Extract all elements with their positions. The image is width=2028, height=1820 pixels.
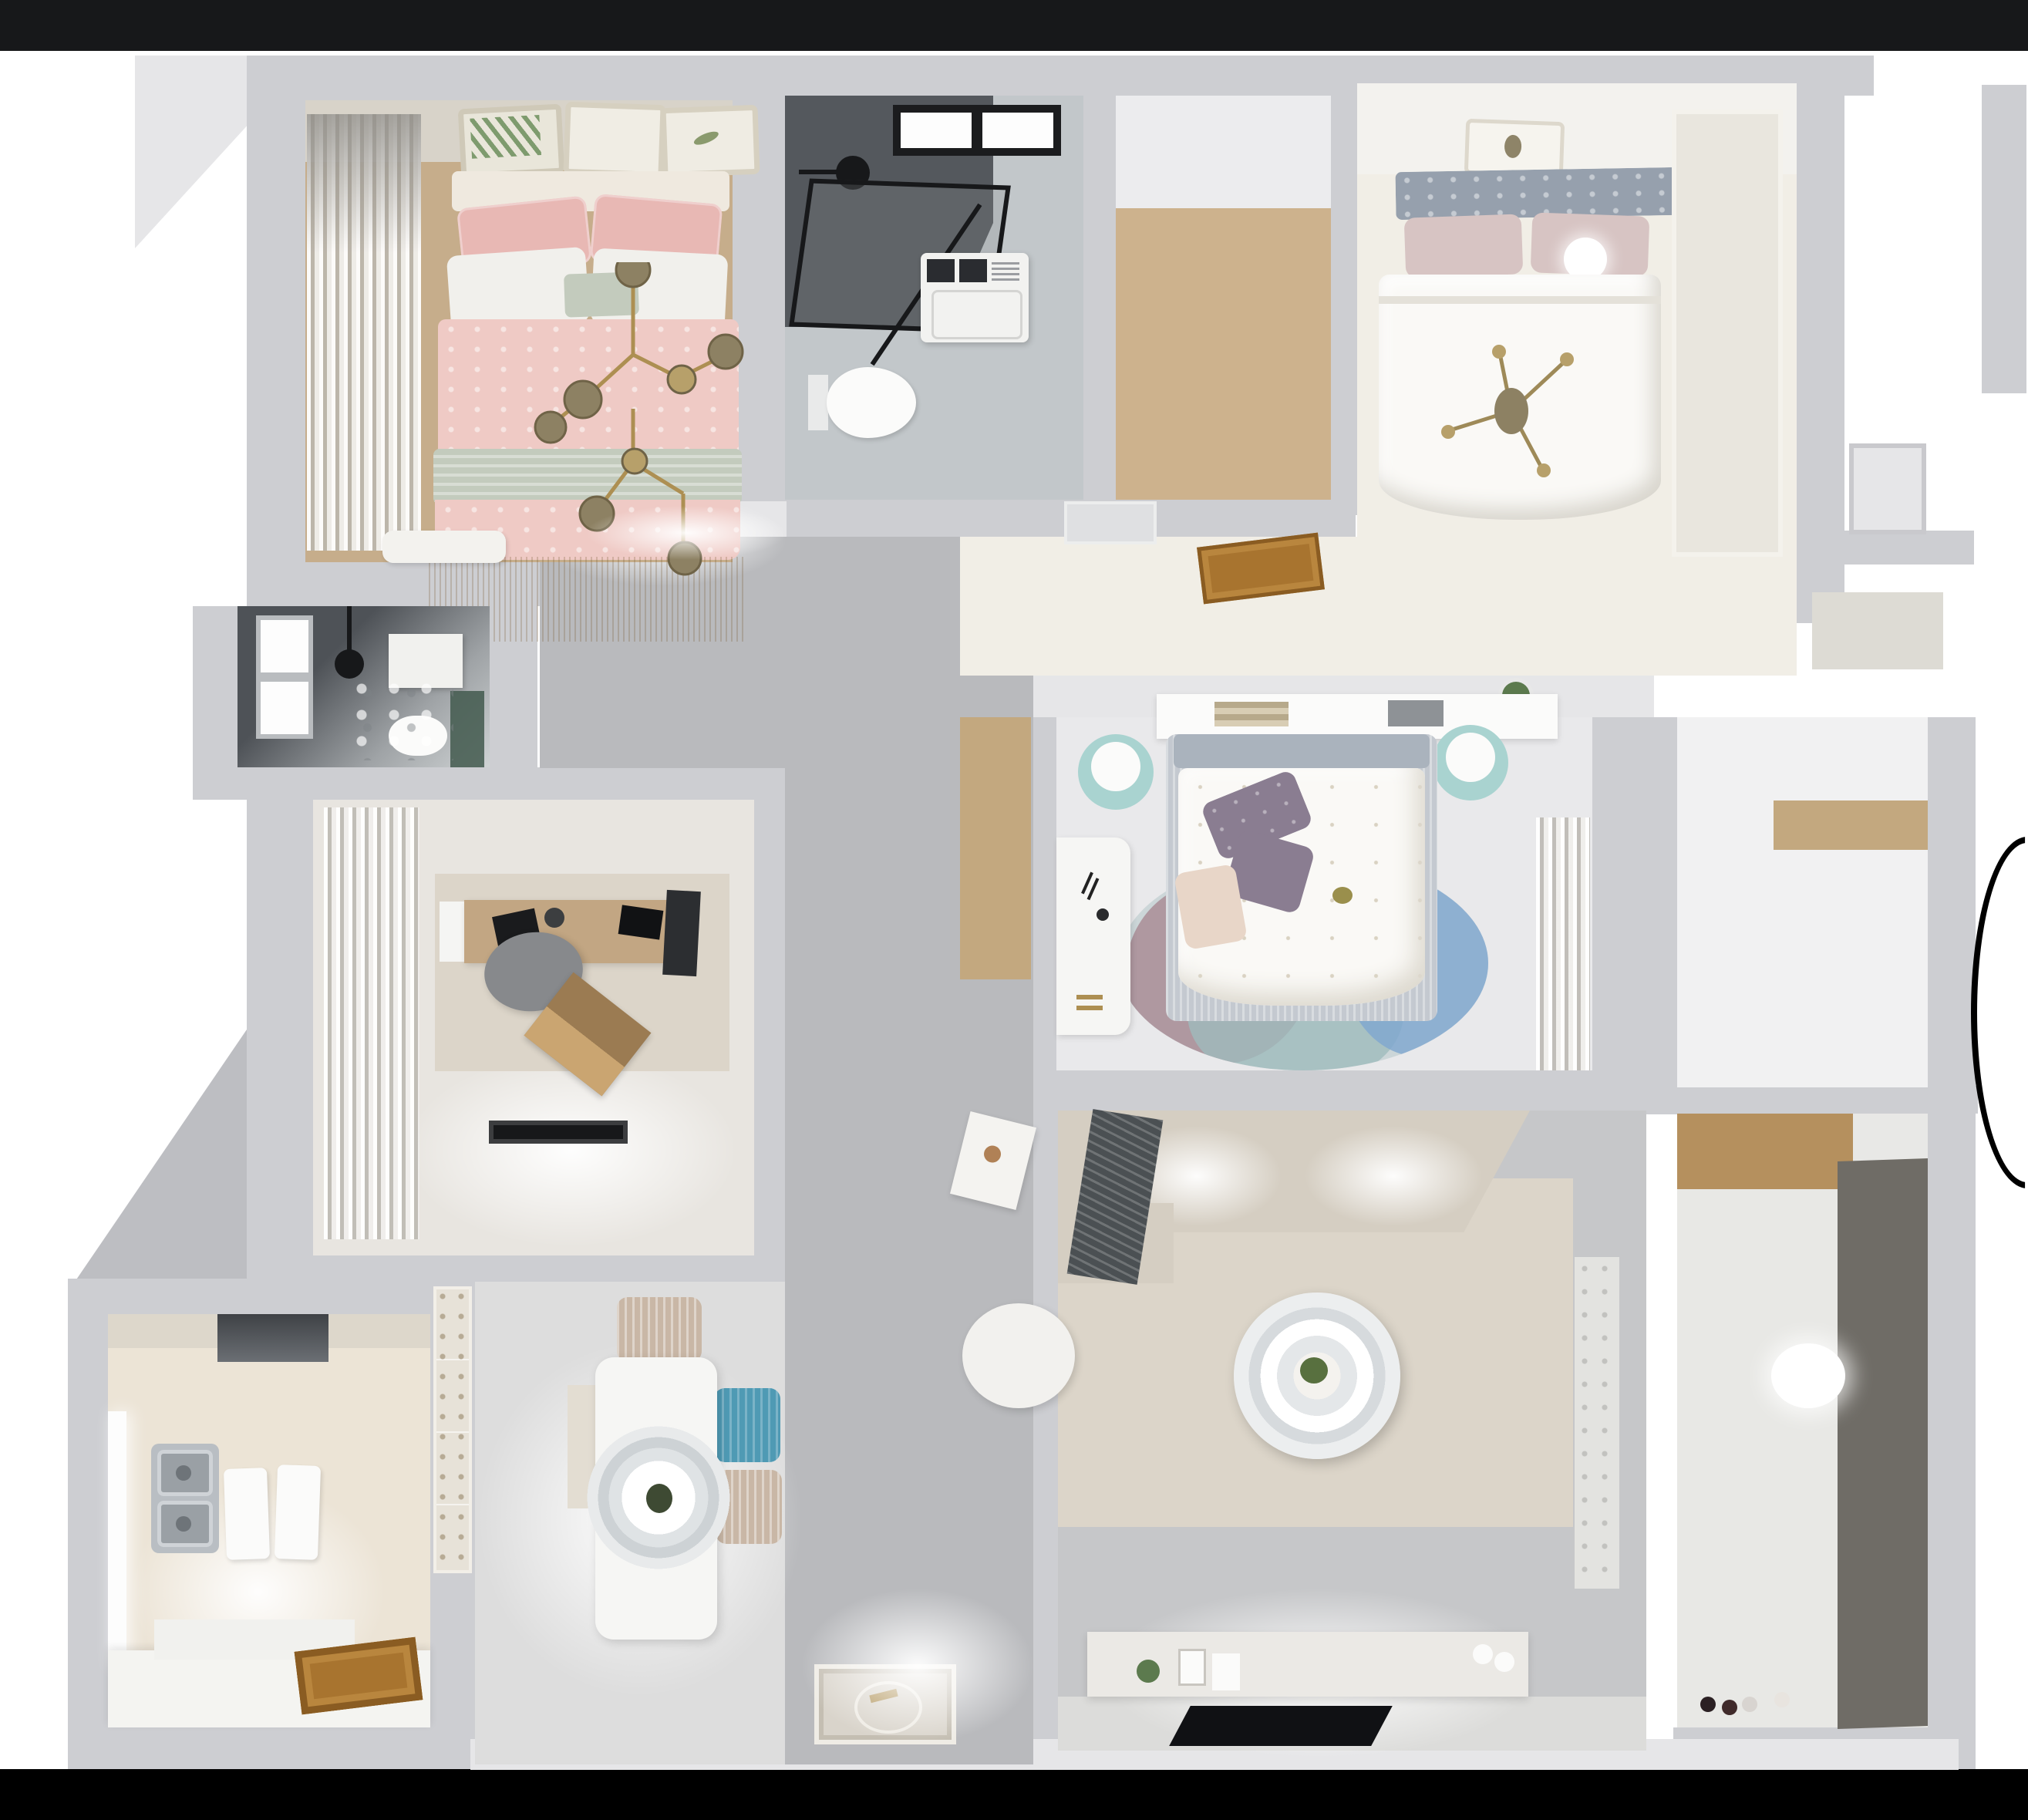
- wardrobe-louver-doors: [1672, 110, 1783, 557]
- bed2-sheet-fold: [1379, 296, 1661, 304]
- study-light: [406, 1054, 737, 1247]
- wall-bevel-top-left: [135, 56, 258, 248]
- balcony-zone: [1677, 1114, 1928, 1727]
- chair-right-blue: [714, 1388, 780, 1462]
- shelf-books: [1214, 702, 1289, 726]
- stool-right-top: [1446, 733, 1495, 782]
- kitchen-window: [108, 1411, 126, 1666]
- wall-balcony-top: [1646, 1086, 1978, 1114]
- wall-shower-left: [193, 606, 237, 771]
- desk-pens: [1081, 871, 1093, 894]
- corridor-door-white: [1849, 443, 1926, 534]
- toilet-bowl: [827, 367, 916, 438]
- shower-arm: [799, 170, 842, 174]
- sink-drain-top: [176, 1465, 191, 1481]
- dining-zone: [475, 1282, 785, 1764]
- bedroom3-zone: [1056, 694, 1592, 1070]
- window-pane-right: [982, 113, 1053, 148]
- wood-niche-shelf: [1774, 800, 1928, 850]
- bed3-flower-dot: [1332, 887, 1353, 904]
- wall-art-frame-botanical: [660, 105, 760, 177]
- letterbox-bottom: [0, 1769, 2028, 1820]
- kitchen-floor: [108, 1314, 430, 1727]
- bed2-pillow-left: [1404, 214, 1524, 278]
- desk-mug: [544, 908, 564, 928]
- side-table-cup: [982, 1144, 1003, 1164]
- desk-monitor-shelf: [662, 890, 701, 976]
- cropped-arc-right: [1971, 837, 2028, 1188]
- coffee-table-plant: [1300, 1357, 1328, 1384]
- desk-dot: [1097, 908, 1109, 921]
- wall-left-slant: [73, 1030, 247, 1284]
- wall-kitchen-bottom: [68, 1727, 477, 1769]
- bedroom1-curtain-shade: [307, 114, 421, 253]
- range-hood: [217, 1314, 328, 1362]
- bed3-headboard-pad: [1174, 734, 1430, 768]
- bedroom3-desk: [1056, 838, 1130, 1035]
- wall-entry-stub: [1820, 531, 1974, 565]
- shoe-cabinet-louver: [1812, 592, 1943, 669]
- laundry-counter-wood: [1677, 1114, 1853, 1189]
- sink-unit: [151, 1444, 219, 1553]
- closet-ceiling: [1116, 96, 1331, 211]
- pouf-white: [962, 1303, 1075, 1408]
- coffee-table: [1234, 1293, 1400, 1459]
- bedroom1-floor: [305, 100, 733, 562]
- wall-closet-bedroom2: [1331, 83, 1357, 515]
- toilet-tank: [808, 375, 828, 430]
- entry-mat: [814, 1664, 956, 1744]
- letterbox-top: [0, 0, 2028, 51]
- stool-left: [1078, 734, 1154, 810]
- console-frames: [1178, 1649, 1206, 1686]
- bed2-headboard: [1395, 167, 1678, 220]
- bed3-canopy-shelf: [1157, 694, 1558, 739]
- washer-panel: [927, 259, 987, 282]
- wall-kitchen-top: [68, 1279, 477, 1314]
- bed3-pillow-blush: [1174, 864, 1248, 950]
- bedroom3-sheer-curtains: [1536, 817, 1590, 1070]
- wall-bathroom-closet: [1083, 96, 1116, 507]
- wall-study-right: [754, 767, 785, 1282]
- balcony-glow-lamp: [1771, 1343, 1845, 1408]
- art-sprig: [692, 129, 720, 147]
- balcony-threshold-strip: [1575, 1257, 1619, 1589]
- cutting-board-1: [224, 1468, 270, 1560]
- wall-corridor-balcony: [1646, 717, 1677, 1114]
- chair-top-beige: [617, 1297, 702, 1362]
- green-accent-tiles: [450, 691, 484, 767]
- console-plant: [1137, 1660, 1160, 1683]
- shower-room-head: [335, 649, 364, 679]
- wall-living-top: [1030, 1070, 1650, 1111]
- wood-niche-left: [960, 717, 1031, 979]
- art-leaves: [470, 115, 541, 159]
- wall-art-frame-script: [563, 102, 665, 177]
- wall-shower-bottom: [193, 767, 785, 800]
- art-plant-mark: [1504, 135, 1522, 159]
- ac-vent-grille: [1064, 501, 1157, 544]
- wall-kitchen-left: [68, 1311, 108, 1743]
- wall-right-outer: [1928, 717, 1976, 1766]
- washing-machine: [921, 253, 1029, 342]
- tv-flat: [1169, 1706, 1393, 1746]
- chandelier-cross-icon: [1427, 338, 1596, 484]
- tv-console: [1087, 1632, 1528, 1697]
- wall-living-left: [1030, 1111, 1058, 1766]
- balcony-toys: [1700, 1697, 1716, 1712]
- toilet-main: [808, 367, 924, 441]
- wall-bedroom1-top: [247, 56, 787, 100]
- living-floor: [1058, 1111, 1646, 1751]
- chandelier-branch-icon: [506, 262, 760, 586]
- wall-far-right-top: [1982, 85, 2026, 393]
- stool-left-top: [1091, 742, 1140, 791]
- shower-room-floor: [237, 606, 490, 767]
- floor-plan-stage: [0, 0, 2028, 1820]
- shower-pipe: [347, 606, 352, 654]
- shelf-gray-box: [1388, 700, 1444, 726]
- study-floor: [313, 800, 754, 1255]
- kitchen-sliding-door: [433, 1286, 472, 1573]
- washer-label: [992, 261, 1019, 281]
- window-pane-left: [901, 113, 972, 148]
- wall-art-frame-green: [458, 104, 565, 179]
- closet-floor: [1116, 208, 1331, 500]
- study-curtains: [324, 807, 419, 1239]
- bed1-foot-bench: [382, 531, 506, 563]
- drying-blinds: [1838, 1158, 1928, 1729]
- entry-mat-medallion: [854, 1681, 922, 1734]
- wall-study-left: [247, 798, 313, 1261]
- sink-drain-bottom: [176, 1516, 191, 1532]
- washer-door: [931, 290, 1022, 339]
- marble-spots: [345, 676, 453, 760]
- shower-room-window: [256, 615, 313, 739]
- wall-bedroom1-left: [247, 56, 305, 608]
- desk-handle-gold: [1076, 995, 1103, 999]
- bathroom-window: [893, 105, 1061, 156]
- study-doormat: [489, 1121, 628, 1144]
- bathroom-floor: [785, 96, 1083, 500]
- pendant-plant-dot: [646, 1484, 672, 1513]
- stool-right: [1433, 725, 1508, 800]
- cutting-board-2: [275, 1464, 321, 1560]
- bedroom2-zone: [1357, 83, 1797, 676]
- wall-bedroom3-left: [1030, 717, 1056, 1073]
- sofa-light-2: [1305, 1126, 1482, 1226]
- corridor-right-floor: [1677, 717, 1928, 1087]
- desk-notebook: [618, 905, 664, 939]
- console-vases: [1473, 1644, 1493, 1664]
- wall-bedroom3-right: [1592, 717, 1646, 1073]
